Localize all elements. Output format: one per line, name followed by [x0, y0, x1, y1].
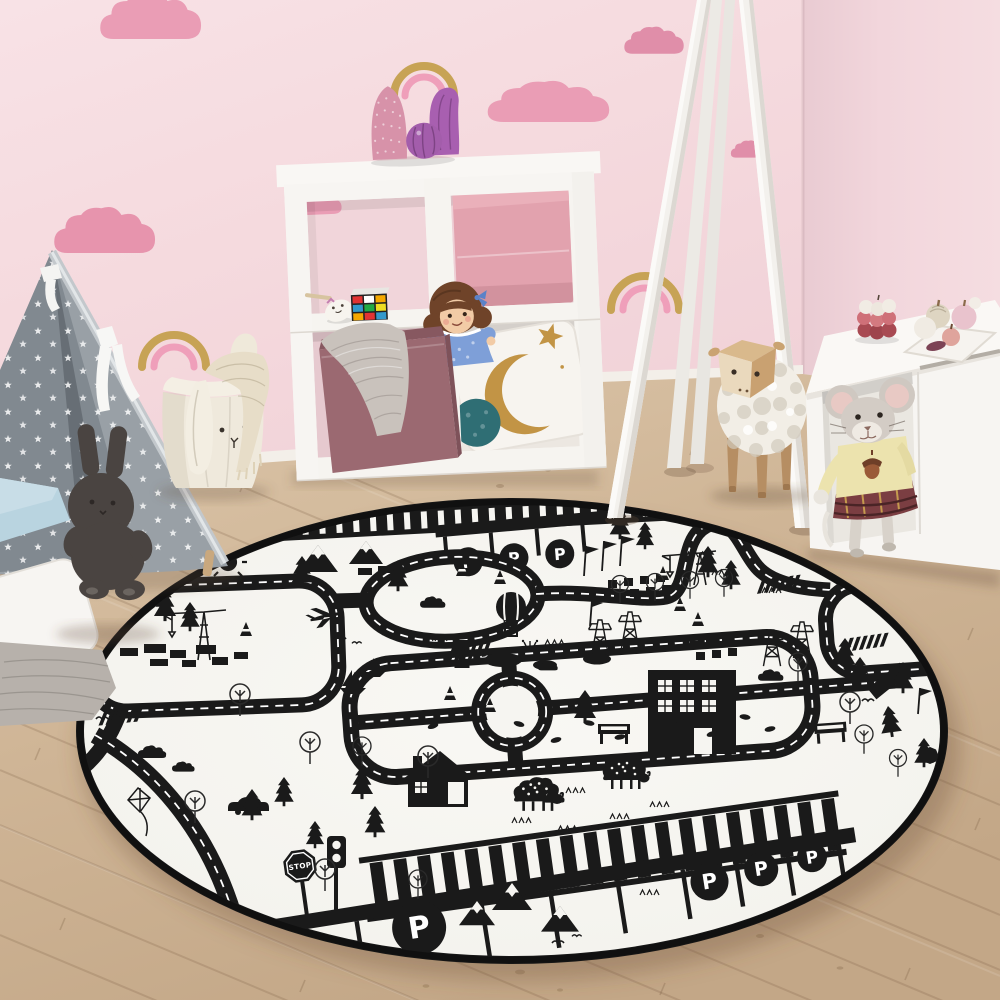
sideboard — [806, 295, 1000, 588]
mouse-eye — [855, 414, 861, 420]
basket-eye — [220, 428, 225, 433]
mouse-paw — [814, 490, 829, 505]
scene: P P P — [0, 0, 1000, 1000]
svg-text:P: P — [553, 544, 567, 564]
candle-wick — [878, 295, 879, 300]
stool-eye — [754, 371, 759, 376]
flower-candle — [969, 297, 981, 309]
bunny-eye — [90, 500, 95, 505]
pumpkin-candle — [914, 317, 936, 339]
bubble-candle — [855, 295, 899, 344]
stool-eye — [731, 369, 736, 374]
sign-icon — [922, 747, 939, 764]
bunny-eye — [111, 501, 116, 506]
apartment-building-icon — [648, 670, 736, 754]
children-room-photo: P P P — [0, 0, 1000, 1000]
mouse-eye — [877, 412, 883, 418]
rubiks-cube — [351, 287, 391, 321]
